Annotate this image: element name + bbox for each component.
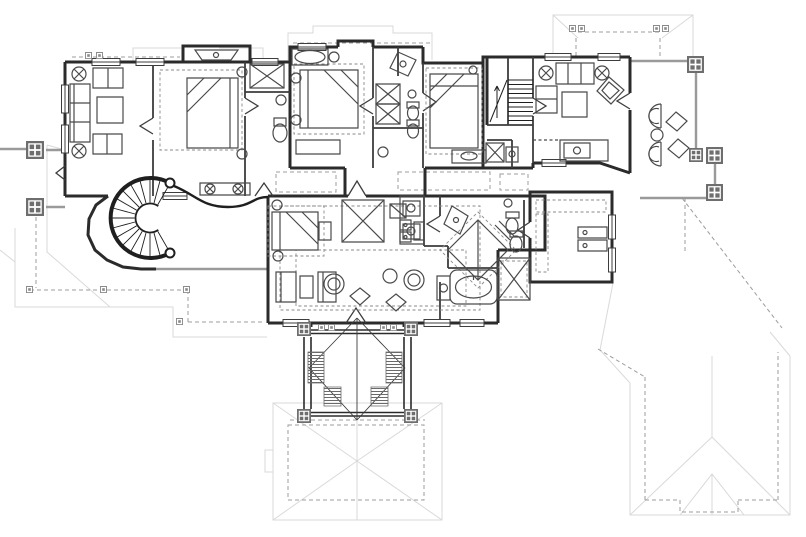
floor-plan-canvas <box>0 0 806 537</box>
stair-treads <box>508 80 533 121</box>
spiral-newel-top <box>166 179 175 188</box>
canopy-bed4 <box>268 206 324 256</box>
door-bed1 <box>140 118 153 134</box>
bath-1 <box>250 64 287 142</box>
stair-run-divider <box>490 80 507 122</box>
door-lounge-top <box>348 181 366 196</box>
deck-post-se <box>706 184 723 201</box>
door-hall-a <box>360 98 373 114</box>
deck-rails <box>630 61 715 198</box>
roof-outline-dashed <box>30 32 782 512</box>
spiral-newel-bottom <box>166 249 175 258</box>
straight-staircase <box>490 80 533 122</box>
balcony-curved-rail <box>174 186 268 207</box>
wet-bar <box>533 140 608 161</box>
bed-3 <box>430 66 486 163</box>
deck-post-mid-b <box>706 147 723 164</box>
lounge-furniture <box>272 200 424 311</box>
left-sitting-room-furniture <box>70 67 123 158</box>
bed-1 <box>187 67 250 195</box>
left-wing-partitions <box>153 62 290 196</box>
top-right-porch-roof <box>553 15 693 60</box>
door-bed2-seat <box>255 183 273 196</box>
right-wing-roof-dashes <box>598 198 782 512</box>
tower-louvers <box>308 352 402 406</box>
tower-post-se <box>404 409 418 423</box>
connector-roof-a <box>276 172 336 192</box>
tower-post-ne <box>404 322 418 336</box>
top-right-porch-dashes <box>576 32 660 56</box>
utility-room-walls <box>530 192 612 282</box>
left-porch-roof <box>0 145 267 337</box>
left-post-lower <box>26 198 44 216</box>
left-post-upper <box>26 141 44 159</box>
fireplace <box>195 50 238 60</box>
deck-furniture <box>649 104 689 166</box>
connector-roof-b <box>398 172 490 190</box>
tower-post-nw <box>297 322 311 336</box>
deck-post-ne <box>687 56 704 73</box>
spiral-inner-rail <box>136 204 159 233</box>
family-room-furniture <box>536 63 624 117</box>
laundry-appliances <box>578 227 607 251</box>
deck-post-mid-a <box>689 148 703 162</box>
roof-outline-light <box>0 15 790 520</box>
stair-bath <box>486 143 518 162</box>
door-family <box>533 98 546 114</box>
door-master-bath <box>427 216 440 232</box>
lower-right-wing-roof <box>600 283 790 515</box>
connector-roof-c <box>500 174 528 190</box>
bed-2 <box>291 49 358 154</box>
floor-plan-page <box>0 0 806 537</box>
tower-post-sw <box>297 409 311 423</box>
ceiling-bed3 <box>426 68 482 154</box>
door-bath1 <box>245 98 258 114</box>
